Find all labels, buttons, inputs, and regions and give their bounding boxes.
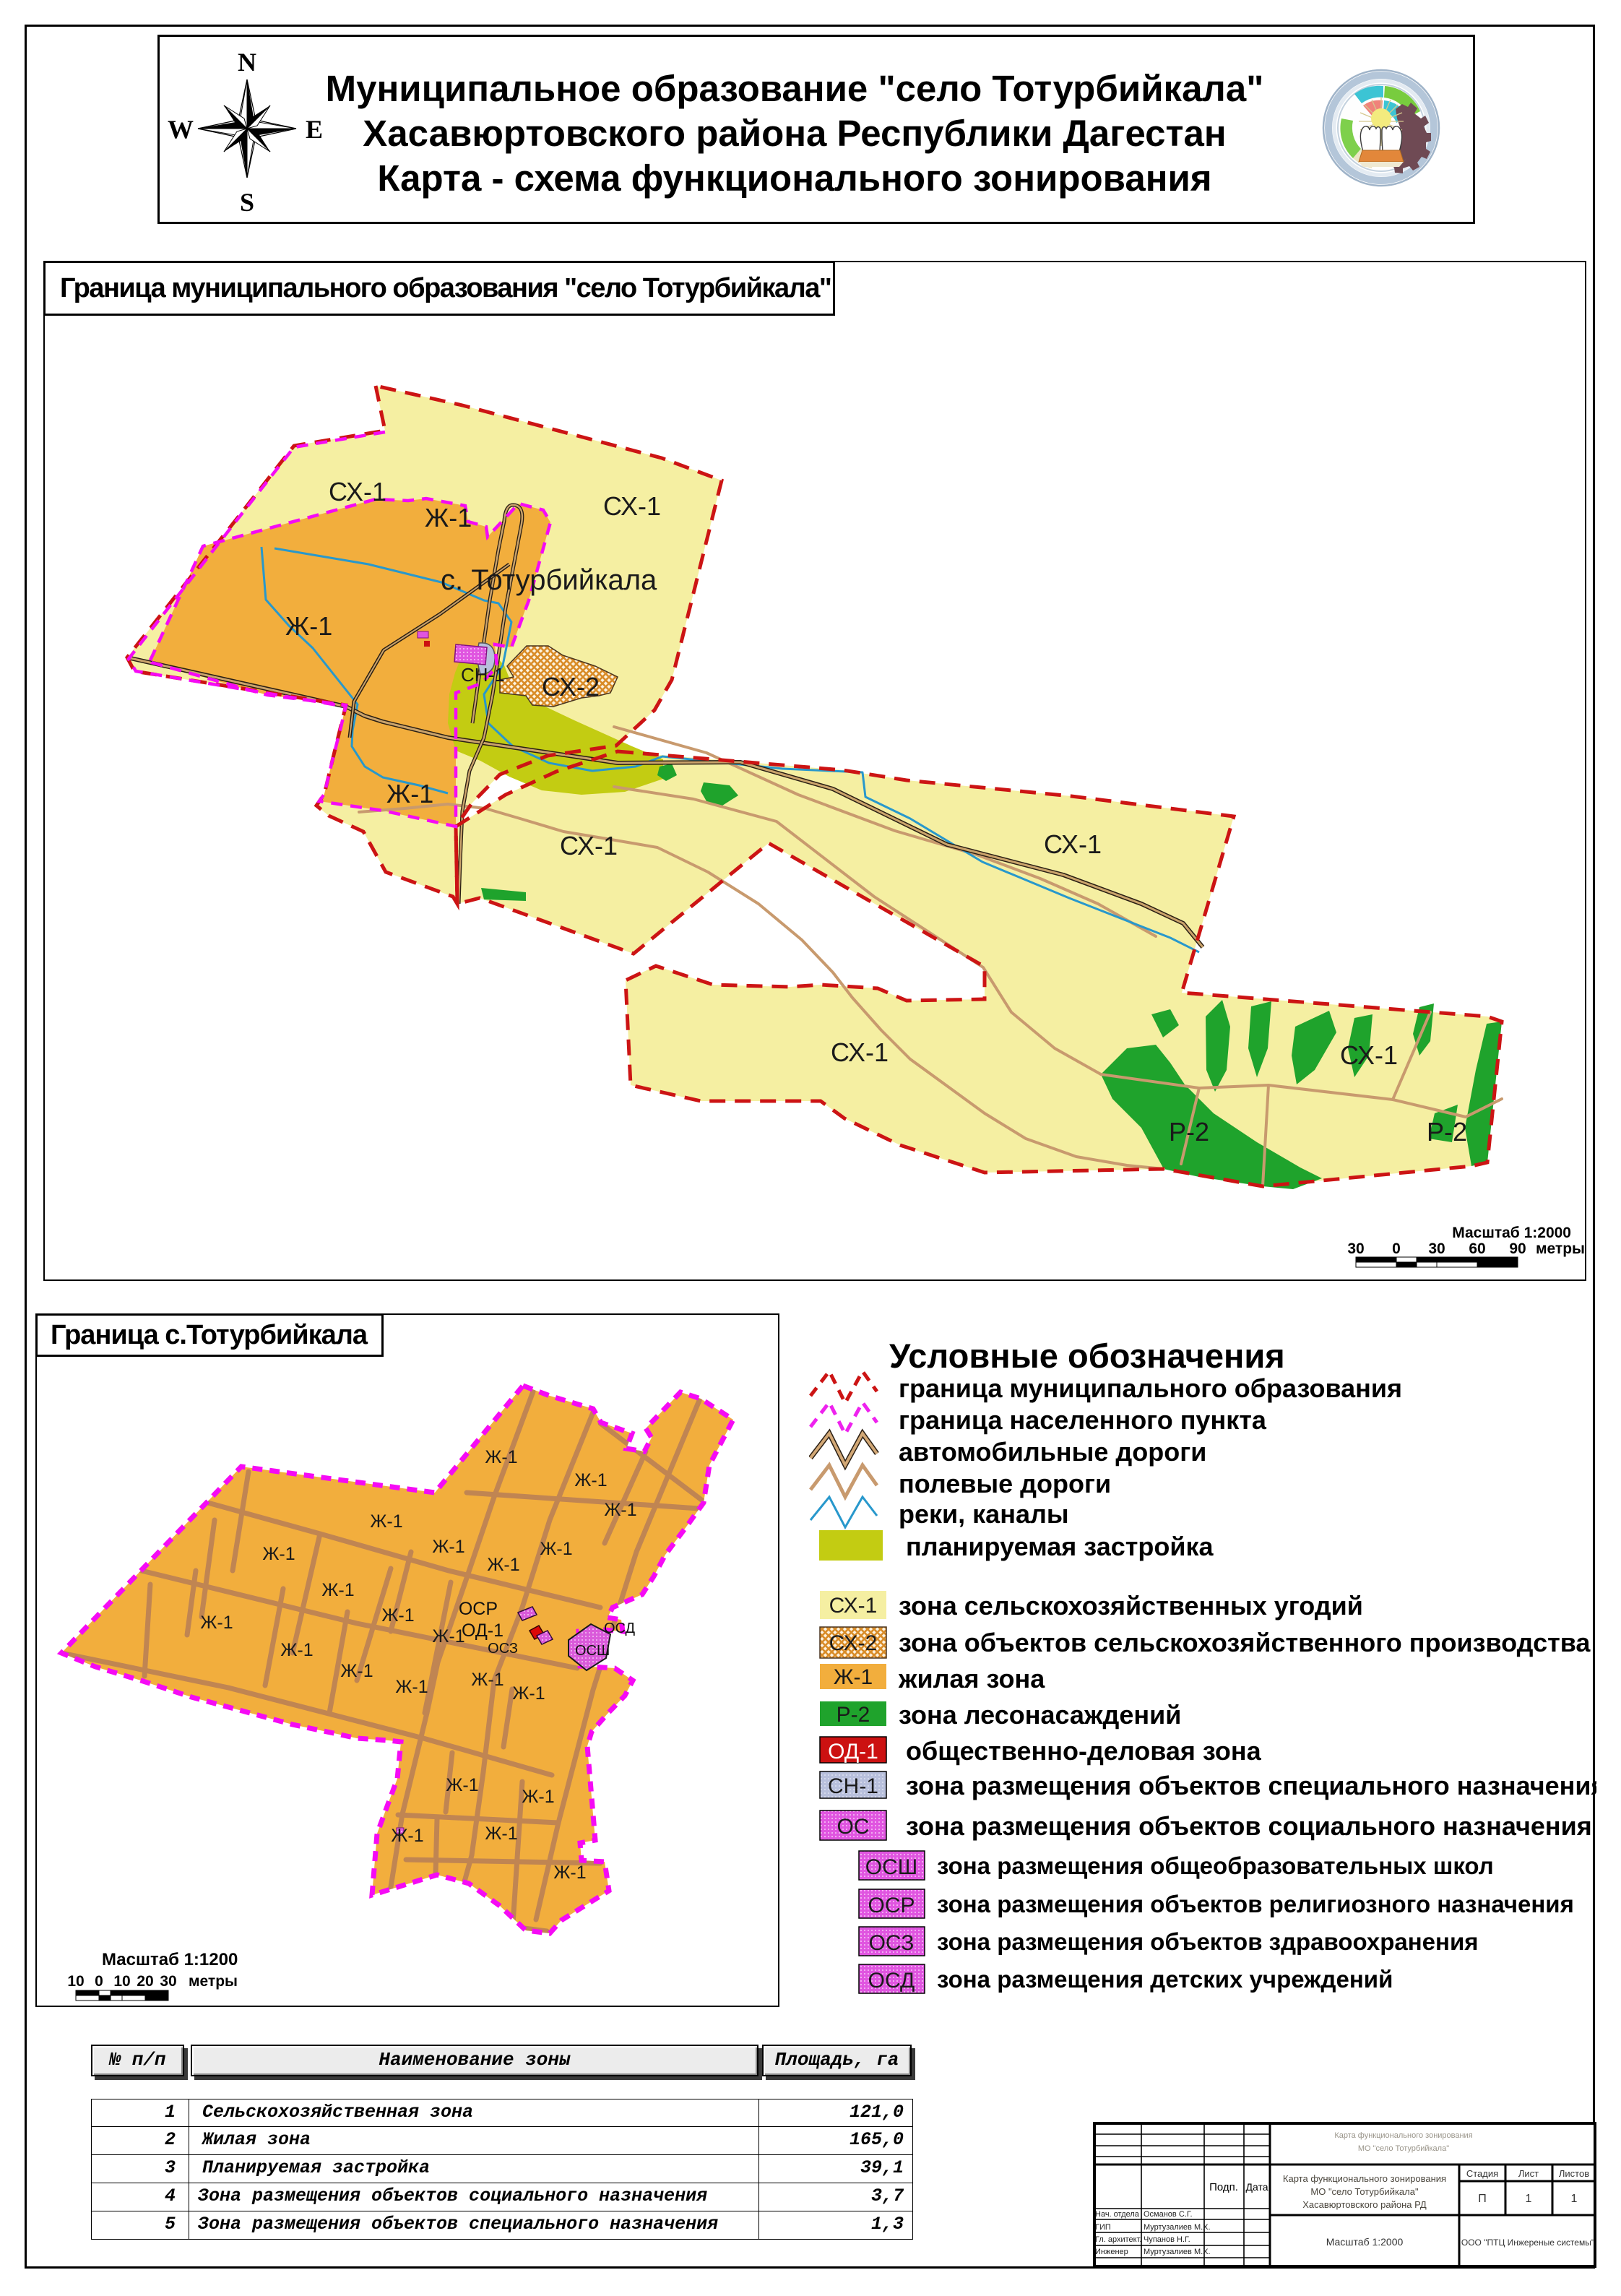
svg-text:Ж-1: Ж-1 (604, 1500, 636, 1520)
svg-text:Ж-1: Ж-1 (834, 1665, 873, 1689)
svg-text:Ж-1: Ж-1 (574, 1470, 607, 1490)
svg-text:общественно-деловая зона: общественно-деловая зона (906, 1736, 1262, 1766)
svg-text:граница муниципального образов: граница муниципального образования (899, 1373, 1402, 1403)
svg-text:Хасавюртовского района РД: Хасавюртовского района РД (1302, 2199, 1427, 2210)
svg-text:Карта функционального зонирова: Карта функционального зонирования (1283, 2173, 1446, 2184)
svg-text:метры: метры (189, 1973, 238, 1990)
svg-text:ОСД: ОСД (868, 1969, 915, 1993)
svg-text:Нач. отдела: Нач. отдела (1095, 2210, 1140, 2219)
svg-text:зона размещения общеобразовате: зона размещения общеобразовательных школ (937, 1852, 1494, 1879)
svg-text:зона объектов сельскохозяйстве: зона объектов сельскохозяйственного прои… (899, 1628, 1591, 1657)
svg-text:зона размещения объектов социа: зона размещения объектов социального наз… (906, 1811, 1592, 1841)
svg-text:Карта функционального зонирова: Карта функционального зонирования (1334, 2131, 1472, 2140)
svg-text:СН-1: СН-1 (828, 1774, 878, 1798)
svg-text:полевые дороги: полевые дороги (899, 1469, 1111, 1498)
svg-text:30: 30 (1347, 1240, 1364, 1257)
svg-text:планируемая застройка: планируемая застройка (906, 1532, 1214, 1561)
svg-text:Ж-1: Ж-1 (446, 1775, 478, 1795)
svg-text:жилая зона: жилая зона (898, 1664, 1045, 1693)
svg-text:СХ-2: СХ-2 (829, 1631, 878, 1655)
svg-text:30: 30 (160, 1973, 176, 1990)
svg-text:S: S (240, 188, 254, 217)
svg-text:Ж-1: Ж-1 (262, 1544, 295, 1564)
svg-text:ОД-1: ОД-1 (828, 1740, 878, 1764)
svg-text:СХ-1: СХ-1 (1340, 1040, 1398, 1070)
svg-text:СХ-1: СХ-1 (831, 1037, 889, 1067)
svg-text:ОСР: ОСР (868, 1894, 915, 1917)
svg-text:Ж-1: Ж-1 (370, 1511, 402, 1532)
svg-text:Ж-1: Ж-1 (386, 779, 433, 808)
svg-text:зона размещения объектов религ: зона размещения объектов религиозного на… (937, 1891, 1574, 1917)
svg-text:Ж-1: Ж-1 (522, 1787, 554, 1807)
svg-text:Ж-1: Ж-1 (200, 1613, 233, 1633)
svg-text:Листов: Листов (1559, 2168, 1589, 2179)
svg-text:СН-1: СН-1 (461, 664, 505, 686)
svg-text:0: 0 (1392, 1240, 1401, 1257)
svg-text:20: 20 (137, 1973, 153, 1990)
svg-text:СХ-1: СХ-1 (329, 477, 386, 506)
svg-text:Инженер: Инженер (1095, 2248, 1128, 2256)
svg-text:зона лесонасаждений: зона лесонасаждений (899, 1700, 1181, 1730)
svg-text:Муртузалиев М.Х.: Муртузалиев М.Х. (1144, 2223, 1211, 2232)
svg-text:Р-2: Р-2 (837, 1703, 870, 1727)
svg-text:N: N (238, 48, 256, 77)
svg-text:ОСР: ОСР (459, 1599, 498, 1619)
svg-text:Условные обозначения: Условные обозначения (889, 1337, 1285, 1375)
svg-text:Ж-1: Ж-1 (471, 1670, 503, 1690)
svg-text:Ж-1: Ж-1 (321, 1580, 354, 1600)
svg-text:Ж-1: Ж-1 (487, 1555, 519, 1575)
svg-text:Ж-1: Ж-1 (540, 1539, 572, 1559)
svg-text:Ж-1: Ж-1 (381, 1605, 414, 1626)
svg-text:Стадия: Стадия (1466, 2168, 1498, 2179)
svg-text:10: 10 (67, 1973, 84, 1990)
svg-text:Ж-1: Ж-1 (485, 1824, 517, 1844)
svg-text:СХ-2: СХ-2 (542, 672, 600, 702)
svg-text:Подп.: Подп. (1209, 2181, 1238, 2193)
svg-text:Масштаб 1:1200: Масштаб 1:1200 (102, 1950, 238, 1969)
svg-text:Масштаб 1:2000: Масштаб 1:2000 (1452, 1225, 1571, 1241)
svg-text:Ж-1: Ж-1 (285, 611, 332, 641)
svg-text:ОСШ: ОСШ (865, 1855, 918, 1879)
svg-text:Дата: Дата (1245, 2181, 1268, 2193)
svg-text:10: 10 (113, 1973, 130, 1990)
svg-text:Ж-1: Ж-1 (425, 503, 472, 532)
svg-text:Ж-1: Ж-1 (280, 1640, 313, 1660)
svg-text:Ж-1: Ж-1 (391, 1826, 423, 1846)
svg-text:автомобильные дороги: автомобильные дороги (899, 1437, 1206, 1467)
svg-text:1: 1 (1526, 2193, 1532, 2205)
svg-text:зона размещения детских учрежд: зона размещения детских учреждений (937, 1966, 1393, 1993)
svg-text:граница населенного пункта: граница населенного пункта (899, 1405, 1267, 1435)
svg-text:Ж-1: Ж-1 (395, 1677, 428, 1697)
svg-text:МО "село Тотурбийкала": МО "село Тотурбийкала" (1358, 2144, 1449, 2153)
svg-text:Ж-1: Ж-1 (485, 1447, 517, 1467)
svg-text:ООО "ПТЦ Инжереные системы": ООО "ПТЦ Инжереные системы" (1461, 2237, 1594, 2248)
svg-text:ОД-1: ОД-1 (462, 1620, 503, 1641)
svg-text:30: 30 (1428, 1240, 1445, 1257)
svg-text:реки, каналы: реки, каналы (899, 1499, 1069, 1529)
svg-text:90: 90 (1509, 1240, 1526, 1257)
svg-text:МО "село Тотурбийкала": МО "село Тотурбийкала" (1310, 2186, 1419, 2197)
svg-text:ОСЗ: ОСЗ (488, 1641, 518, 1657)
svg-text:Ж-1: Ж-1 (340, 1661, 373, 1681)
svg-text:0: 0 (95, 1973, 103, 1990)
svg-text:Ж-1: Ж-1 (512, 1683, 545, 1704)
svg-text:Ж-1: Ж-1 (432, 1626, 464, 1647)
svg-text:СХ-1: СХ-1 (829, 1594, 878, 1618)
svg-text:СХ-1: СХ-1 (603, 491, 661, 521)
svg-text:1: 1 (1571, 2193, 1578, 2205)
svg-text:ОСЗ: ОСЗ (869, 1931, 915, 1955)
svg-text:П: П (1478, 2193, 1487, 2205)
svg-text:W: W (168, 115, 194, 144)
svg-text:Лист: Лист (1518, 2168, 1539, 2179)
svg-text:ОСД: ОСД (604, 1620, 636, 1636)
svg-text:Р-2: Р-2 (1427, 1117, 1467, 1147)
svg-text:зона размещения объектов здрав: зона размещения объектов здравоохранения (937, 1928, 1479, 1955)
svg-text:зона сельскохозяйственных угод: зона сельскохозяйственных угодий (899, 1591, 1363, 1620)
svg-text:Муртузалиев М.Х.: Муртузалиев М.Х. (1144, 2248, 1211, 2256)
svg-text:Ж-1: Ж-1 (553, 1863, 586, 1883)
svg-text:метры: метры (1536, 1240, 1585, 1257)
svg-text:СХ-1: СХ-1 (1044, 829, 1102, 859)
svg-text:Масштаб 1:2000: Масштаб 1:2000 (1326, 2236, 1404, 2248)
svg-text:СХ-1: СХ-1 (560, 831, 618, 860)
svg-text:ОС: ОС (837, 1815, 870, 1839)
svg-text:Гл. архитект.: Гл. архитект. (1095, 2235, 1141, 2244)
svg-text:Чупанов Н.Г.: Чупанов Н.Г. (1144, 2235, 1190, 2244)
svg-text:Р-2: Р-2 (1169, 1117, 1209, 1147)
svg-text:60: 60 (1469, 1240, 1485, 1257)
svg-text:с. Тотурбийкала: с. Тотурбийкала (441, 564, 657, 596)
svg-text:Ж-1: Ж-1 (432, 1537, 464, 1557)
svg-text:ОСШ: ОСШ (575, 1643, 610, 1659)
svg-text:Османов С.Г.: Османов С.Г. (1144, 2210, 1193, 2219)
svg-text:ГИП: ГИП (1095, 2223, 1111, 2232)
svg-text:зона размещения объектов специ: зона размещения объектов специального на… (906, 1771, 1596, 1800)
